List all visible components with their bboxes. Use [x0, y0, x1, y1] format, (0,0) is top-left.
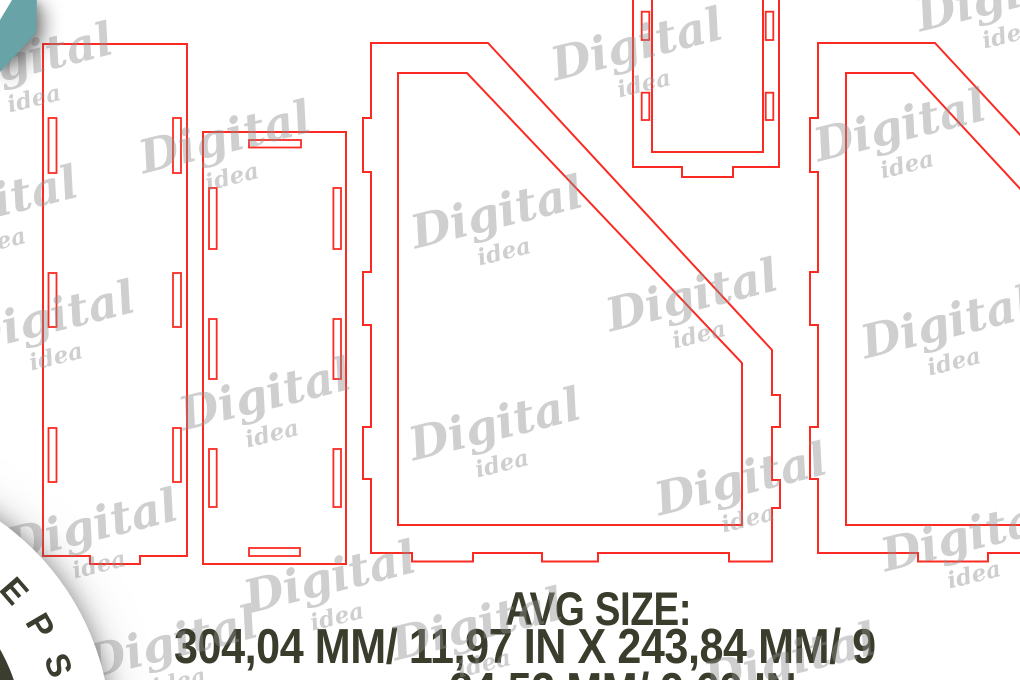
avg-size-line2: 24,52 MM/ 9,60 IN — [449, 663, 796, 680]
laser-cut-template-preview: AVG SIZE: 304,04 MM/ 11,97 IN X 243,84 M… — [0, 0, 1020, 680]
size-info: AVG SIZE: 304,04 MM/ 11,97 IN X 243,84 M… — [0, 0, 1020, 680]
